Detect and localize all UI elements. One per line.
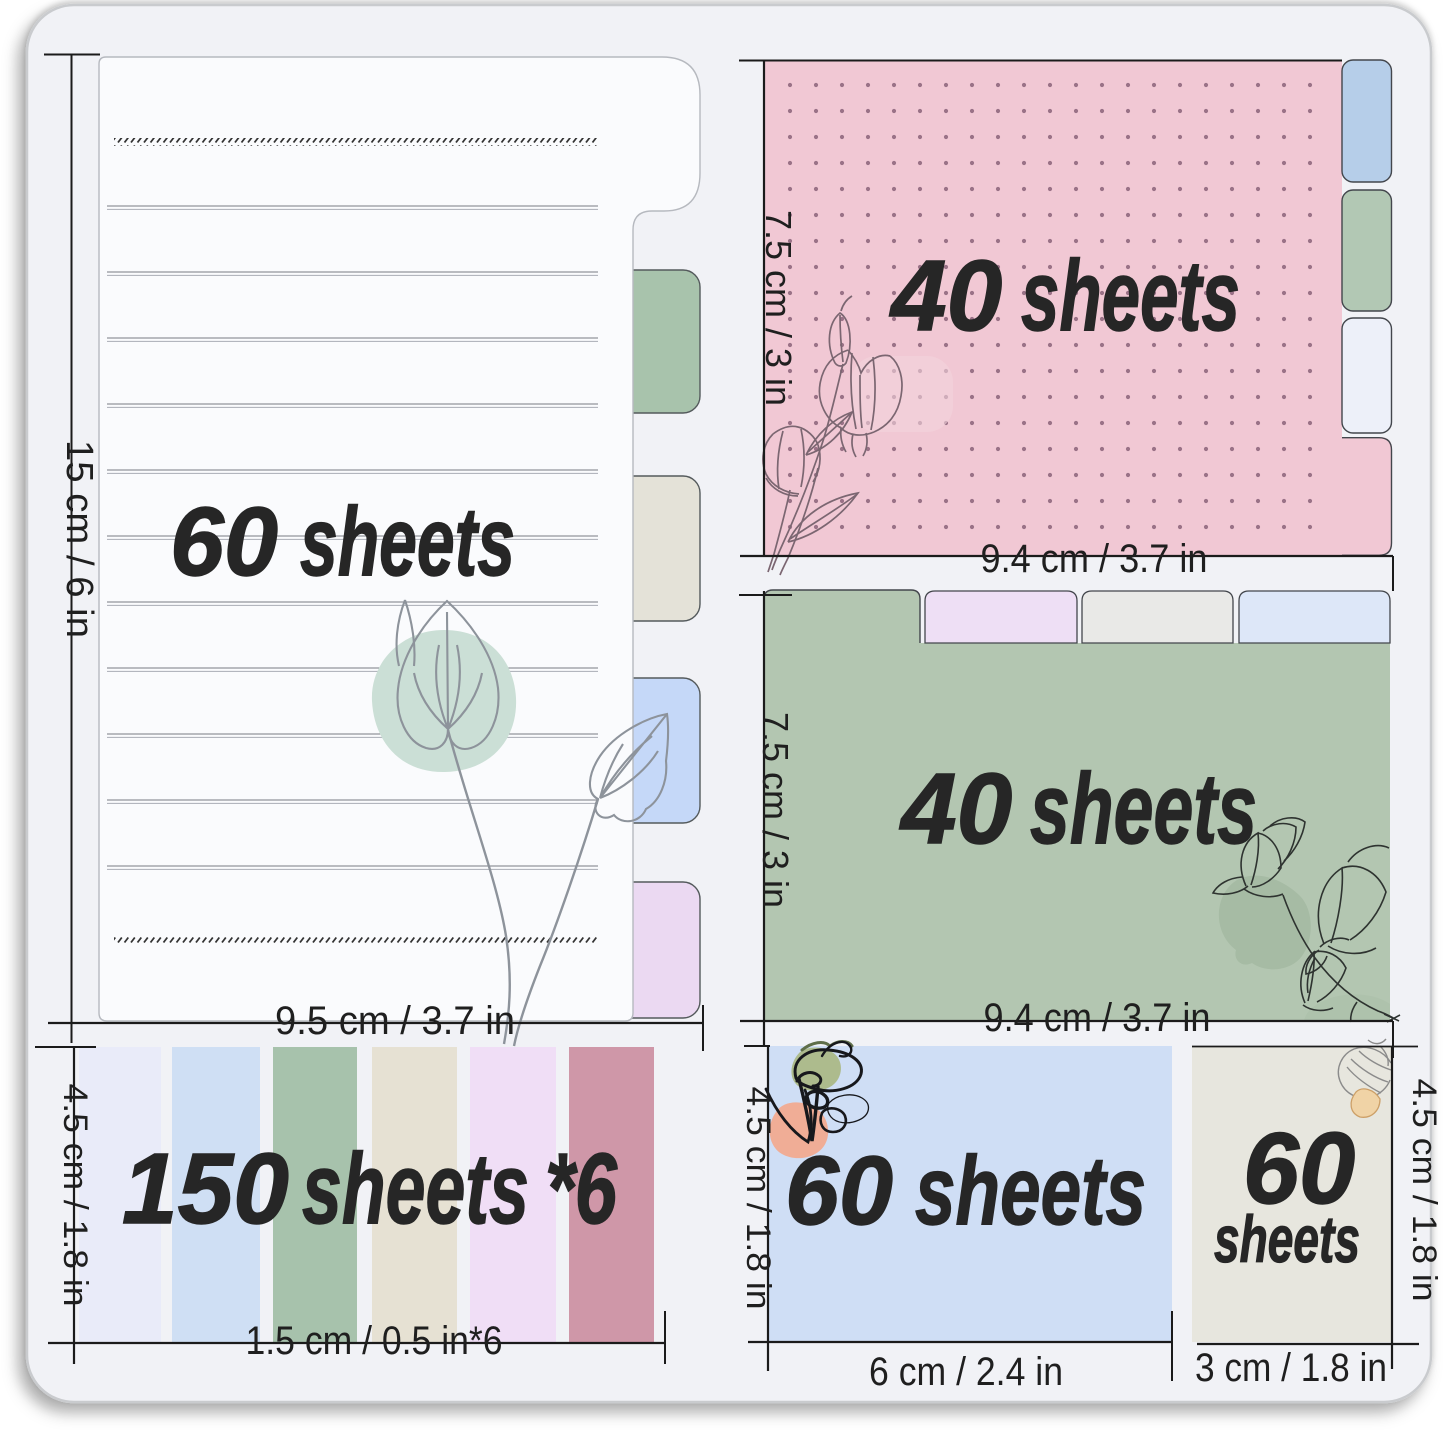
svg-text:9.5 cm / 3.7 in: 9.5 cm / 3.7 in xyxy=(275,999,515,1043)
svg-text:sheets: sheets xyxy=(1030,753,1257,865)
svg-text:sheets: sheets xyxy=(302,1133,529,1245)
svg-text:9.4 cm / 3.7 in: 9.4 cm / 3.7 in xyxy=(984,996,1211,1040)
svg-text:4.5 cm / 1.8 in: 4.5 cm / 1.8 in xyxy=(739,1087,777,1310)
svg-text:60: 60 xyxy=(785,1136,893,1245)
svg-text:60: 60 xyxy=(170,487,278,596)
svg-text:sheets: sheets xyxy=(1214,1202,1360,1276)
svg-text:7.5 cm / 3 in: 7.5 cm / 3 in xyxy=(758,210,799,406)
svg-text:3 cm / 1.8 in: 3 cm / 1.8 in xyxy=(1195,1346,1387,1390)
svg-text:sheets: sheets xyxy=(300,487,515,596)
svg-text:6 cm / 2.4 in: 6 cm / 2.4 in xyxy=(869,1350,1063,1394)
svg-text:1.5 cm / 0.5 in*6: 1.5 cm / 0.5 in*6 xyxy=(246,1319,503,1363)
svg-text:15 cm / 6 in: 15 cm / 6 in xyxy=(58,440,100,638)
svg-text:40: 40 xyxy=(899,753,1012,865)
svg-text:4.5 cm / 1.8 in: 4.5 cm / 1.8 in xyxy=(56,1084,94,1307)
svg-text:4.5 cm / 1.8 in: 4.5 cm / 1.8 in xyxy=(1405,1079,1443,1302)
svg-text:9.4 cm / 3.7 in: 9.4 cm / 3.7 in xyxy=(981,537,1208,581)
svg-text:*6: *6 xyxy=(545,1133,618,1245)
svg-text:150: 150 xyxy=(122,1133,289,1245)
svg-text:40: 40 xyxy=(889,240,1002,352)
svg-text:7.5 cm / 3 in: 7.5 cm / 3 in xyxy=(755,712,796,908)
svg-text:sheets: sheets xyxy=(1021,240,1240,352)
svg-text:sheets: sheets xyxy=(915,1136,1146,1245)
